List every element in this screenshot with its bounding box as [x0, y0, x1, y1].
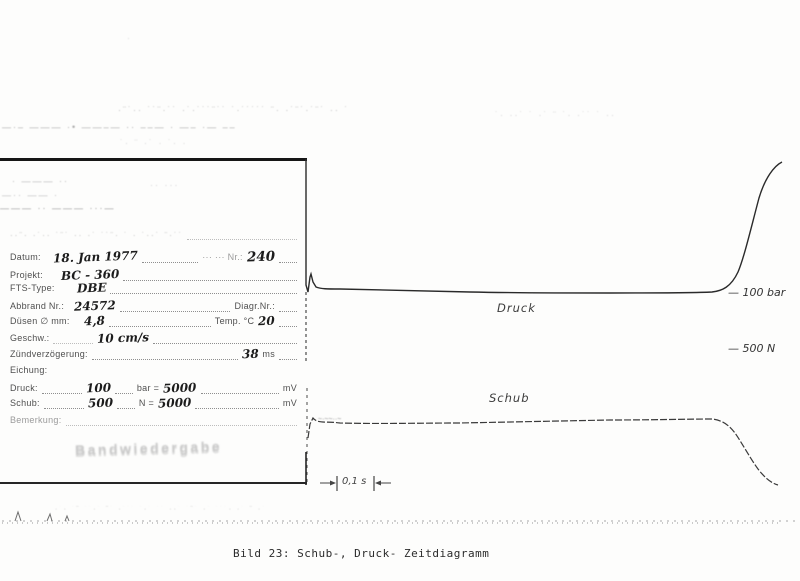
field-label-temp: Temp. °C: [215, 316, 255, 327]
field-value-datum: 18. Jan 1977: [53, 250, 138, 265]
dotted-leader: [279, 349, 297, 360]
dotted-leader: [279, 252, 297, 263]
schub-curve-label: Schub: [489, 391, 530, 405]
dotted-leader: [42, 383, 82, 394]
dotted-leader: [153, 333, 297, 344]
field-value-druck-mv: 5000: [163, 381, 197, 394]
form-row-bemerkung: Bemerkung:: [10, 412, 297, 426]
field-label-eichung-schub: Schub:: [10, 398, 40, 409]
form-header-smudge: ··¨· ·˙·· ˙¨˙ ·· ·˙ ˙˙¨· ˙ · ˙··˙ ¨·˙˙: [10, 231, 183, 240]
schub-trace: [308, 418, 778, 485]
form-row-projekt: Projekt: BC - 360: [10, 267, 297, 281]
field-unit-ms: ms: [262, 349, 275, 360]
baseline-spikes: [15, 512, 69, 521]
field-label-versuch-nr: ··· ··· Nr.:: [202, 252, 243, 263]
field-label-zuendverzoegerung: Zündverzögerung:: [10, 349, 88, 360]
scan-smudge: ·˙· ˙¨ ˙˙·˙ ¨˙ ·˙˙˙ ˙·˙ ˙˙ ··˙ ˙¨˙ ·˙ ˙˙…: [55, 506, 575, 513]
field-unit-bar-eq: bar =: [137, 383, 159, 394]
field-label-bemerkung: Bemerkung:: [10, 415, 62, 426]
dotted-leader: [53, 333, 93, 344]
field-value-versuch-nr: 240: [247, 251, 276, 264]
dotted-leader: [44, 398, 84, 409]
recorder-data-form: ··¨· ·˙·· ˙¨˙ ·· ·˙ ˙˙¨· ˙ · ˙··˙ ¨·˙˙ D…: [0, 158, 307, 484]
scan-smudge: —·– ——— ·• ——–— ·· ––— · —– ·— ––: [2, 122, 462, 132]
pen-scribble: ~·~~··~: [318, 416, 341, 423]
dotted-leader: [279, 301, 297, 312]
form-row-zuendverzoegerung: Zündverzögerung: 38 ms: [10, 346, 297, 360]
field-unit-mv: mV: [283, 383, 297, 394]
form-row-fts-type: FTS-Type: DBE: [10, 280, 297, 294]
dotted-leader: [115, 383, 133, 394]
dotted-leader: [109, 316, 211, 327]
dotted-leader: [120, 301, 231, 312]
field-value-abbrand-nr: 24572: [74, 299, 116, 312]
time-scale-label: 0,1 s: [342, 476, 366, 487]
marker-500-n: — 500 N: [728, 342, 775, 355]
field-value-temp: 20: [258, 315, 275, 328]
druck-trace: [306, 159, 782, 293]
dotted-leader: [92, 349, 238, 360]
field-label-duesen: Düsen ∅ mm:: [10, 316, 70, 327]
field-value-schub-mv: 5000: [158, 396, 192, 409]
field-unit-mv: mV: [283, 398, 297, 409]
field-label-fts-type: FTS-Type:: [10, 283, 55, 294]
field-value-duesen: 4,8: [83, 315, 104, 328]
form-row-geschw: Geschw.: 10 cm/s: [10, 330, 297, 344]
form-row-eichung: Eichung:: [10, 362, 297, 376]
field-label-eichung: Eichung:: [10, 365, 47, 376]
form-row-datum: Datum: 18. Jan 1977 ··· ··· Nr.: 240: [10, 249, 297, 263]
time-scale-arrowhead-left: [330, 481, 336, 486]
dotted-leader: [117, 398, 135, 409]
dotted-leader: [66, 415, 297, 426]
form-row-eichung-druck: Druck: 100 bar = 5000 mV: [10, 380, 297, 394]
field-label-eichung-druck: Druck:: [10, 383, 38, 394]
form-row-duesen: Düsen ∅ mm: 4,8 Temp. °C 20: [10, 313, 297, 327]
bandwiedergabe-stamp: Bandwiedergabe: [75, 438, 222, 458]
field-label-diagr-nr: Diagr.Nr.:: [234, 301, 275, 312]
form-row-header: ··¨· ·˙·· ˙¨˙ ·· ·˙ ˙˙¨· ˙ · ˙··˙ ¨·˙˙: [10, 226, 297, 240]
druck-curve-label: Druck: [497, 301, 536, 315]
time-scale-arrowhead-right: [375, 481, 381, 486]
scan-smudge: ·¨˙·· ˙˙¨·˙˙ ·˙·˙˙˙¨˙˙ ˙·˙˙˙˙˙ ¨· ·˙¨˙·˙…: [118, 105, 428, 115]
field-value-geschw: 10 cm/s: [97, 331, 149, 345]
scan-smudge: ˙· ··˙ ˙ ·˙ ¨ ˙· ·˙˙ ˙ ··: [495, 110, 765, 120]
marker-100-bar: — 100 bar: [728, 286, 785, 299]
form-row-eichung-schub: Schub: 500 N = 5000 mV: [10, 395, 297, 409]
scanned-diagram-page: · ·¨˙·· ˙˙¨·˙˙ ·˙·˙˙˙¨˙˙ ˙·˙˙˙˙˙ ¨· ·˙¨˙…: [0, 0, 800, 581]
field-label-geschw: Geschw.:: [10, 333, 49, 344]
field-label-datum: Datum:: [10, 252, 41, 263]
field-value-zuendverzoegerung: 38: [241, 348, 258, 361]
field-value-schub-n: 500: [88, 397, 113, 410]
dotted-leader: [110, 283, 297, 294]
field-value-druck-bar: 100: [86, 382, 111, 395]
field-label-abbrand-nr: Abbrand Nr.:: [10, 301, 64, 312]
dotted-leader: [187, 229, 297, 240]
scan-smudge: ·: [127, 33, 132, 43]
figure-caption: Bild 23: Schub-, Druck- Zeitdiagramm: [233, 547, 489, 560]
dotted-leader: [201, 383, 279, 394]
form-row-abbrand-nr: Abbrand Nr.: 24572 Diagr.Nr.:: [10, 298, 297, 312]
field-value-fts-type: DBE: [77, 281, 107, 294]
dotted-leader: [195, 398, 278, 409]
field-unit-n-eq: N =: [139, 398, 154, 409]
dotted-leader: [142, 252, 199, 263]
scan-smudge: ˙· ¨ ·˙ · ˙· ·: [120, 138, 640, 148]
dotted-leader: [279, 316, 297, 327]
